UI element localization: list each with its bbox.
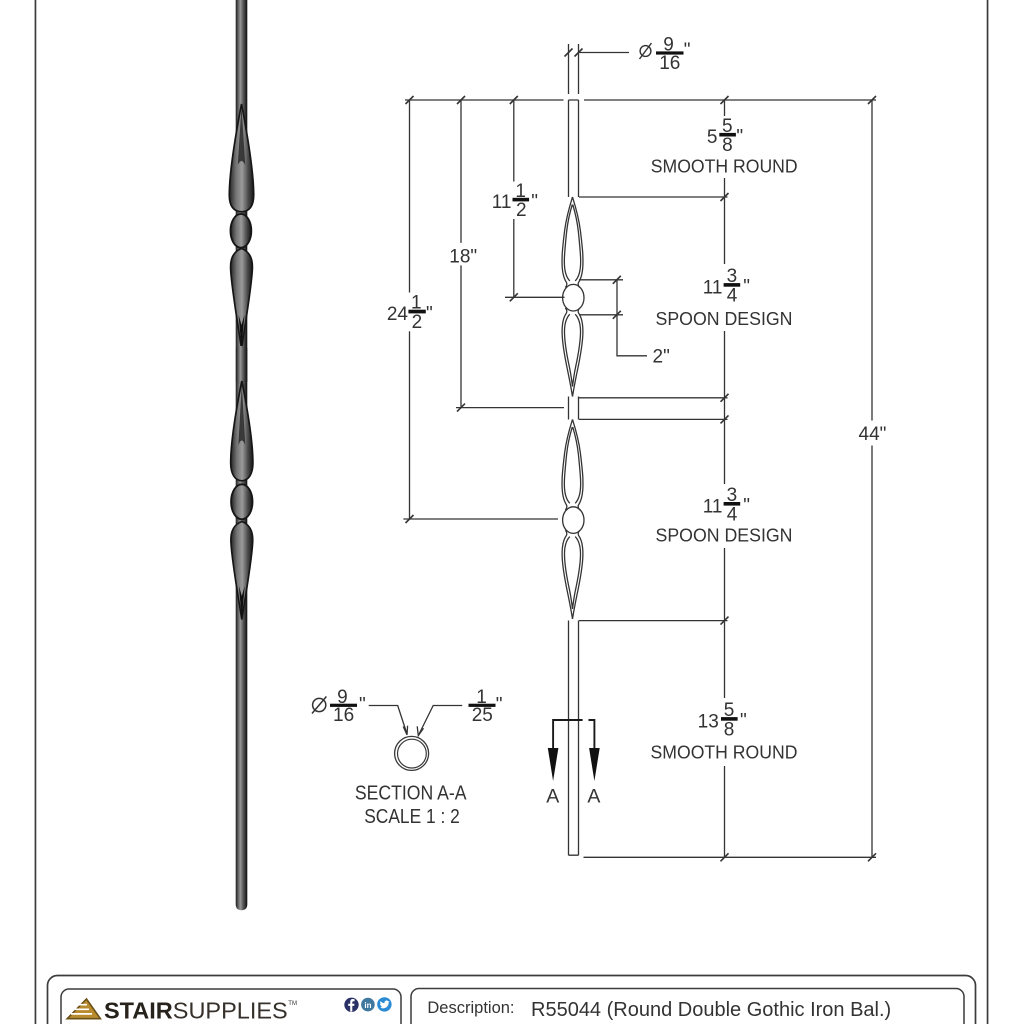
svg-text:44": 44" <box>859 424 887 445</box>
svg-text:2: 2 <box>516 200 527 221</box>
svg-text:": " <box>736 127 743 148</box>
svg-text:": " <box>496 695 503 716</box>
svg-text:": " <box>743 496 750 517</box>
svg-text:": " <box>743 277 750 298</box>
svg-text:A: A <box>546 786 559 808</box>
svg-text:SMOOTH ROUND: SMOOTH ROUND <box>651 742 798 763</box>
svg-text:TM: TM <box>288 1001 297 1007</box>
svg-text:SPOON DESIGN: SPOON DESIGN <box>656 308 793 329</box>
svg-text:18": 18" <box>449 246 477 267</box>
svg-text:SPOON DESIGN: SPOON DESIGN <box>656 525 793 546</box>
svg-text:SMOOTH ROUND: SMOOTH ROUND <box>651 155 798 176</box>
svg-text:Description:: Description: <box>427 999 514 1017</box>
svg-text:A: A <box>587 786 600 808</box>
svg-text:": " <box>684 40 691 61</box>
svg-text:SCALE 1 : 2: SCALE 1 : 2 <box>364 805 460 828</box>
svg-text:11: 11 <box>703 496 723 517</box>
svg-text:13: 13 <box>698 711 719 732</box>
svg-text:4: 4 <box>727 504 738 525</box>
svg-text:": " <box>359 695 366 716</box>
svg-text:25: 25 <box>472 705 493 726</box>
svg-text:5: 5 <box>707 127 718 148</box>
svg-text:16: 16 <box>333 705 354 726</box>
svg-text:2: 2 <box>412 312 423 333</box>
svg-text:STAIRSUPPLIES: STAIRSUPPLIES <box>104 998 288 1024</box>
svg-text:in: in <box>364 1001 371 1010</box>
svg-text:8: 8 <box>722 135 733 156</box>
svg-text:": " <box>740 711 747 732</box>
svg-text:11: 11 <box>492 192 512 213</box>
svg-text:2": 2" <box>653 347 670 368</box>
svg-text:4: 4 <box>727 285 738 306</box>
svg-text:11: 11 <box>703 277 723 298</box>
svg-text:16: 16 <box>659 53 680 74</box>
svg-text:": " <box>426 303 433 324</box>
svg-text:": " <box>531 191 538 212</box>
svg-text:24: 24 <box>387 304 409 325</box>
svg-text:8: 8 <box>724 719 735 740</box>
svg-text:R55044 (Round Double Gothic Ir: R55044 (Round Double Gothic Iron Bal.) <box>531 999 891 1021</box>
svg-text:SECTION A-A: SECTION A-A <box>355 782 467 805</box>
